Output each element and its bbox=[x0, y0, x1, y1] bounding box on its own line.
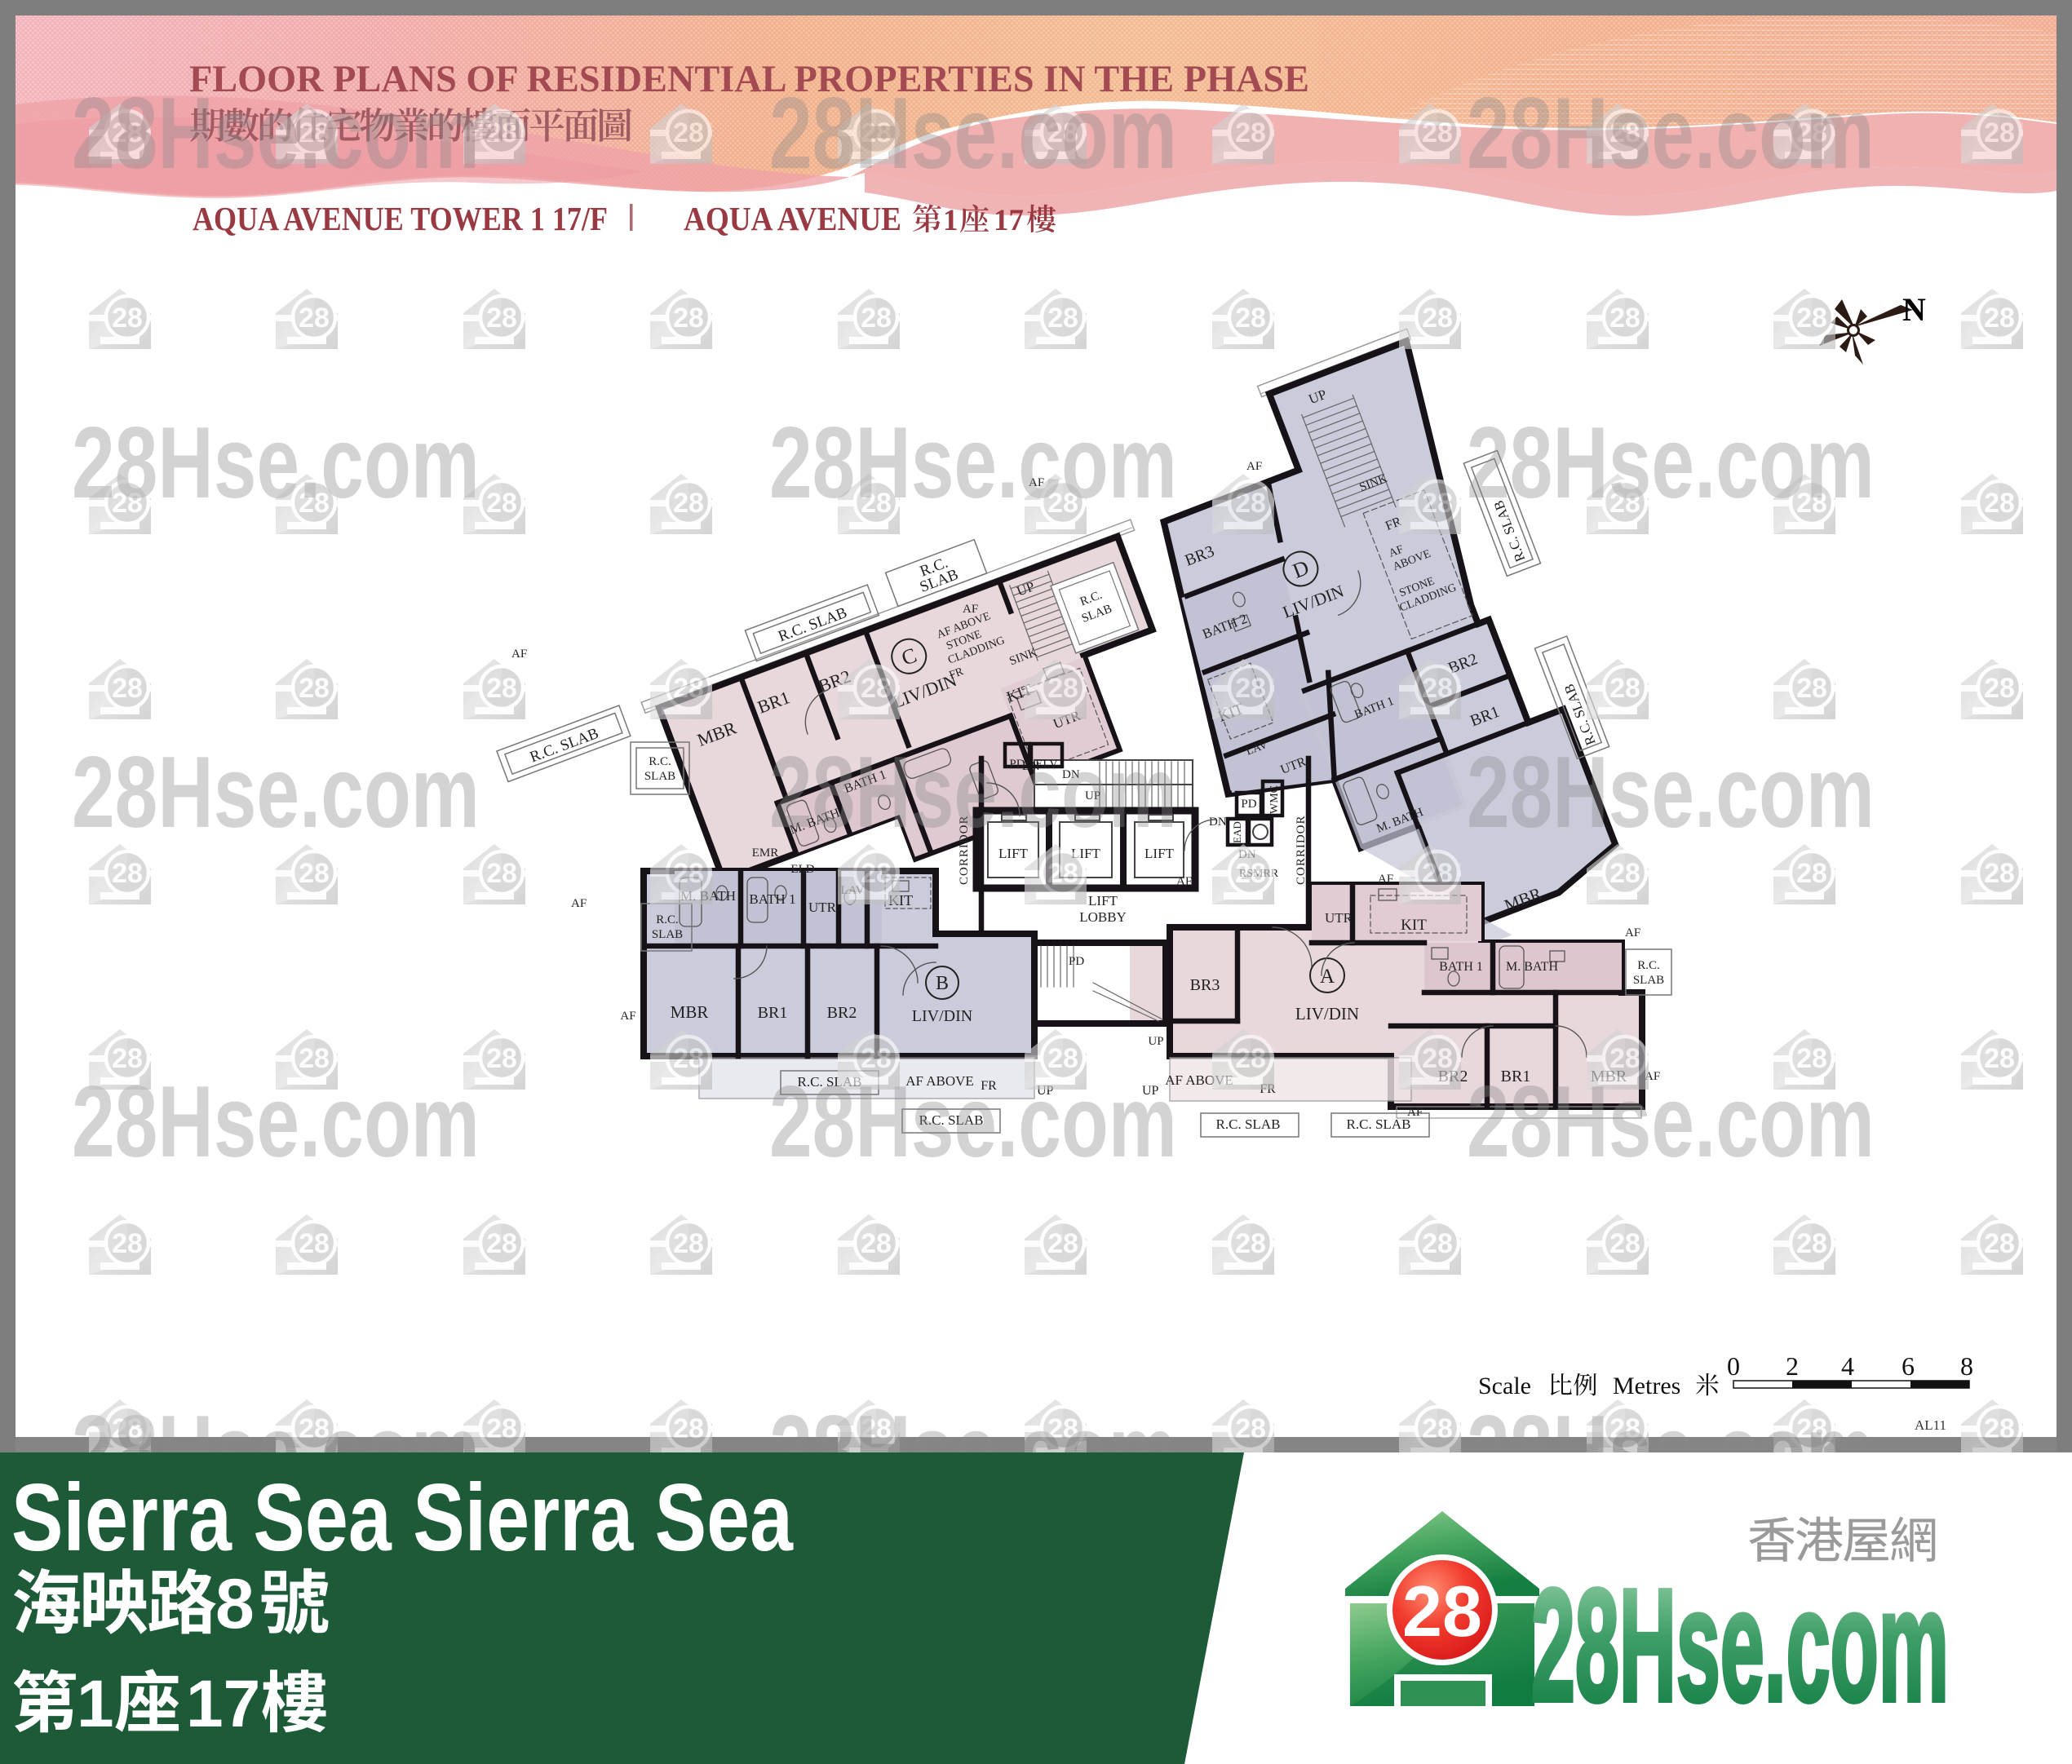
svg-text:UTR: UTR bbox=[1325, 910, 1353, 926]
svg-text:M. BATH: M. BATH bbox=[1506, 960, 1558, 974]
svg-text:28: 28 bbox=[1402, 1571, 1482, 1651]
svg-text:AL11: AL11 bbox=[1915, 1417, 1946, 1433]
svg-text:4: 4 bbox=[1841, 1351, 1854, 1381]
svg-text:AF: AF bbox=[963, 603, 978, 616]
svg-text:BR2: BR2 bbox=[827, 1004, 857, 1022]
svg-text:CORRIDOR: CORRIDOR bbox=[1295, 815, 1308, 885]
svg-text:AQUA AVENUE TOWER 1 17/F: AQUA AVENUE TOWER 1 17/F bbox=[193, 200, 608, 237]
svg-text:AQUA AVENUE: AQUA AVENUE bbox=[684, 200, 901, 237]
svg-text:BR1: BR1 bbox=[758, 1004, 788, 1022]
svg-text:28Hse.com: 28Hse.com bbox=[1531, 1556, 1949, 1735]
svg-text:ELD: ELD bbox=[790, 863, 814, 876]
svg-text:17: 17 bbox=[994, 204, 1024, 237]
svg-text:Sierra Sea Sierra Sea: Sierra Sea Sierra Sea bbox=[11, 1464, 794, 1571]
svg-text:R.C. SLAB: R.C. SLAB bbox=[1347, 1116, 1411, 1132]
svg-text:BR3: BR3 bbox=[1190, 976, 1220, 994]
svg-text:SLAB: SLAB bbox=[644, 770, 675, 783]
svg-text:17: 17 bbox=[186, 1667, 260, 1741]
svg-text:R.C. SLAB: R.C. SLAB bbox=[1216, 1116, 1281, 1132]
svg-text:AF: AF bbox=[571, 897, 587, 910]
svg-text:8: 8 bbox=[215, 1565, 255, 1643]
svg-text:6: 6 bbox=[1902, 1351, 1915, 1381]
svg-text:PD: PD bbox=[1069, 955, 1084, 968]
svg-text:SLAB: SLAB bbox=[1633, 974, 1664, 987]
svg-text:AF: AF bbox=[511, 648, 527, 661]
svg-text:LIV/DIN: LIV/DIN bbox=[912, 1007, 972, 1025]
svg-text:N: N bbox=[1902, 291, 1926, 328]
svg-text:DN: DN bbox=[1209, 816, 1227, 829]
svg-text:PD: PD bbox=[1241, 798, 1256, 811]
svg-text:KIT: KIT bbox=[1401, 917, 1427, 934]
svg-text:EAD: EAD bbox=[1231, 821, 1243, 843]
svg-text:BATH 1: BATH 1 bbox=[749, 891, 795, 907]
svg-text:MBR: MBR bbox=[671, 1002, 709, 1022]
svg-text:R.C.: R.C. bbox=[656, 913, 679, 926]
svg-text:0: 0 bbox=[1727, 1351, 1740, 1381]
svg-text:B: B bbox=[936, 973, 949, 994]
svg-text:BATH 1: BATH 1 bbox=[1439, 960, 1483, 974]
svg-text:SLAB: SLAB bbox=[652, 928, 683, 941]
svg-text:1: 1 bbox=[77, 1667, 114, 1741]
svg-text:R.C.: R.C. bbox=[1637, 959, 1660, 972]
svg-text:1: 1 bbox=[943, 204, 959, 237]
svg-text:2: 2 bbox=[1786, 1351, 1799, 1381]
svg-text:AF: AF bbox=[620, 1010, 635, 1023]
svg-text:8: 8 bbox=[1960, 1351, 1973, 1381]
svg-text:UP: UP bbox=[1148, 1035, 1163, 1048]
svg-text:AF: AF bbox=[1625, 926, 1640, 939]
svg-text:AF: AF bbox=[1407, 1106, 1423, 1119]
svg-text:AF: AF bbox=[1176, 875, 1192, 888]
svg-text:UTR: UTR bbox=[808, 900, 837, 915]
svg-text:LIV/DIN: LIV/DIN bbox=[1295, 1004, 1359, 1023]
svg-text:AF: AF bbox=[1378, 873, 1393, 886]
svg-text:AF: AF bbox=[1246, 460, 1262, 473]
svg-text:R.C.: R.C. bbox=[649, 755, 671, 768]
svg-text:WMC: WMC bbox=[1268, 785, 1281, 814]
svg-text:LIFT: LIFT bbox=[1088, 893, 1118, 909]
svg-text:LOBBY: LOBBY bbox=[1079, 909, 1127, 925]
